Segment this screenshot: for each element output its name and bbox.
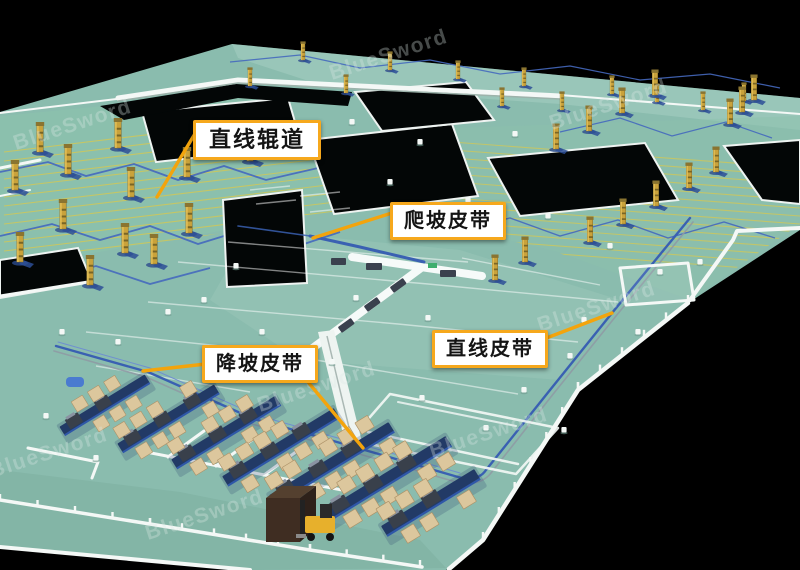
pillar-cube <box>561 427 566 433</box>
floor-pillar <box>634 329 641 336</box>
tower-cap <box>491 255 498 258</box>
tower-cap <box>700 91 705 93</box>
railing-post <box>561 407 563 415</box>
callout-text: 直线皮带 <box>446 338 534 360</box>
floor-pillar <box>58 329 65 336</box>
tower-highlight <box>12 163 14 190</box>
pillar-cube <box>635 329 640 335</box>
tower-cap <box>586 217 593 220</box>
railing-post <box>529 457 531 465</box>
floor-pillar <box>424 315 431 322</box>
tower-cap <box>712 147 719 150</box>
floor-pillar <box>606 243 613 250</box>
pillar-cube <box>425 315 430 321</box>
tower-highlight <box>186 206 188 233</box>
tower-cap <box>59 199 67 203</box>
tower-cap <box>86 255 94 259</box>
tower-highlight <box>60 202 62 229</box>
railing-post <box>599 365 601 373</box>
railing-post <box>687 295 689 303</box>
tower-cap <box>300 41 305 43</box>
pillar-cube <box>59 329 64 335</box>
tower-cap <box>521 67 526 69</box>
pillar-cube <box>349 119 354 125</box>
floor-pillar <box>511 131 518 138</box>
floor-pillar <box>560 427 567 434</box>
tower-highlight <box>751 77 753 100</box>
railing-post <box>419 560 421 566</box>
pillar-cube <box>607 243 612 249</box>
tower-cap <box>455 60 460 62</box>
pillar-cube <box>567 353 572 359</box>
tower-highlight <box>739 89 741 112</box>
tower-highlight <box>17 235 19 262</box>
floor-pillar <box>566 353 573 360</box>
railing-post <box>213 528 215 534</box>
pillar-cube <box>417 139 422 145</box>
callout-decline-belt: 降坡皮带 <box>202 345 318 383</box>
tower-cap <box>685 163 692 166</box>
tower-highlight <box>456 62 457 79</box>
pillar-cube <box>233 263 238 269</box>
tower-cap <box>750 75 757 78</box>
forklift-body <box>305 516 335 533</box>
tower-highlight <box>713 149 715 172</box>
railing-post <box>482 532 484 540</box>
pillar-cube <box>201 297 206 303</box>
railing-post <box>0 494 1 500</box>
tower-highlight <box>701 93 702 110</box>
pillar-cube <box>259 329 264 335</box>
callout-text: 爬坡皮带 <box>404 210 492 232</box>
tower-highlight <box>128 170 130 197</box>
tower-highlight <box>727 101 729 124</box>
tower-highlight <box>522 239 524 262</box>
floor-pillar <box>416 139 423 146</box>
tower-highlight <box>151 237 153 264</box>
tower-cap <box>185 203 193 207</box>
floor-pillar <box>656 269 663 276</box>
floor-pillar <box>92 455 99 462</box>
pillar-cube <box>697 259 702 265</box>
tower-cap <box>11 160 19 164</box>
railing-post <box>643 330 645 338</box>
tower-highlight <box>122 226 124 253</box>
warehouse-3d-render: BlueSwordBlueSwordBlueSwordBlueSwordBlue… <box>0 0 800 570</box>
floor-pillar <box>544 213 551 220</box>
tower-highlight <box>248 69 249 86</box>
pillar-cube <box>115 339 120 345</box>
tower-highlight <box>587 219 589 242</box>
floor-pillar <box>696 259 703 266</box>
tower-cap <box>609 75 614 77</box>
callout-text: 直线辊道 <box>209 127 305 152</box>
railing-post <box>577 382 579 390</box>
tower-cap <box>726 99 733 102</box>
floor-pillar <box>328 359 335 366</box>
floor-pillar <box>114 339 121 346</box>
tower-cap <box>652 181 659 184</box>
green-machine <box>428 263 437 268</box>
forklift-mast <box>300 500 305 536</box>
tower-cap <box>247 67 252 69</box>
tower-highlight <box>301 43 302 60</box>
tower-highlight <box>686 165 688 188</box>
callout-straight-roller-conveyor: 直线辊道 <box>193 120 321 160</box>
railing-post <box>36 500 38 506</box>
tower-highlight <box>115 121 117 148</box>
pillar-cube <box>93 455 98 461</box>
pillar-cube <box>545 213 550 219</box>
pillar-cube <box>419 395 424 401</box>
railing-post <box>545 432 547 440</box>
tower-highlight <box>522 69 523 86</box>
callout-incline-belt: 爬坡皮带 <box>390 202 506 240</box>
tower-highlight <box>500 89 501 106</box>
tower-cap <box>651 70 658 73</box>
tower-cap <box>64 144 72 148</box>
pillar-cube <box>165 309 170 315</box>
tower-cap <box>619 199 626 202</box>
tower-highlight <box>65 147 67 174</box>
railing-post <box>111 512 113 518</box>
floor-pillar <box>520 387 527 394</box>
tower-cap <box>738 87 745 90</box>
tower-cap <box>16 232 24 236</box>
tower-highlight <box>620 201 622 224</box>
railing-post <box>621 347 623 355</box>
floor-pillar <box>258 329 265 336</box>
pillar-cube <box>43 413 48 419</box>
tower-cap <box>741 82 746 84</box>
railing-post <box>513 482 515 490</box>
tower-cap <box>150 234 158 238</box>
railing-post <box>382 555 384 561</box>
tower-cap <box>521 237 528 240</box>
floor-pillar <box>232 263 239 270</box>
pillar-cube <box>329 359 334 365</box>
pillar-cube <box>353 295 358 301</box>
tower-cap <box>121 223 129 227</box>
railing-post <box>74 506 76 512</box>
railing-post <box>498 507 500 515</box>
tower-highlight <box>87 258 89 285</box>
scene-canvas: BlueSwordBlueSwordBlueSwordBlueSwordBlue… <box>0 0 800 570</box>
tower-cap <box>559 91 564 93</box>
railing-post <box>245 534 247 540</box>
pillar-cube <box>512 131 517 137</box>
tower-cap <box>499 87 504 89</box>
floor-pillar <box>386 179 393 186</box>
floor-pillar <box>42 413 49 420</box>
floor-pillar <box>348 119 355 126</box>
floor-pillar <box>200 297 207 304</box>
railing-post <box>665 312 667 320</box>
tower-highlight <box>653 183 655 206</box>
callout-straight-belt: 直线皮带 <box>432 330 548 368</box>
tower-highlight <box>492 257 494 280</box>
pillar-cube <box>657 269 662 275</box>
pillar-cube <box>521 387 526 393</box>
floor-pillar <box>352 295 359 302</box>
water-feature <box>66 377 84 387</box>
callout-text: 降坡皮带 <box>216 353 304 375</box>
pillar-cube <box>387 179 392 185</box>
floor-pillar <box>418 395 425 402</box>
railing-post <box>345 549 347 555</box>
floor-pillar <box>164 309 171 316</box>
railing-post <box>309 544 311 550</box>
tower-cap <box>127 167 135 171</box>
